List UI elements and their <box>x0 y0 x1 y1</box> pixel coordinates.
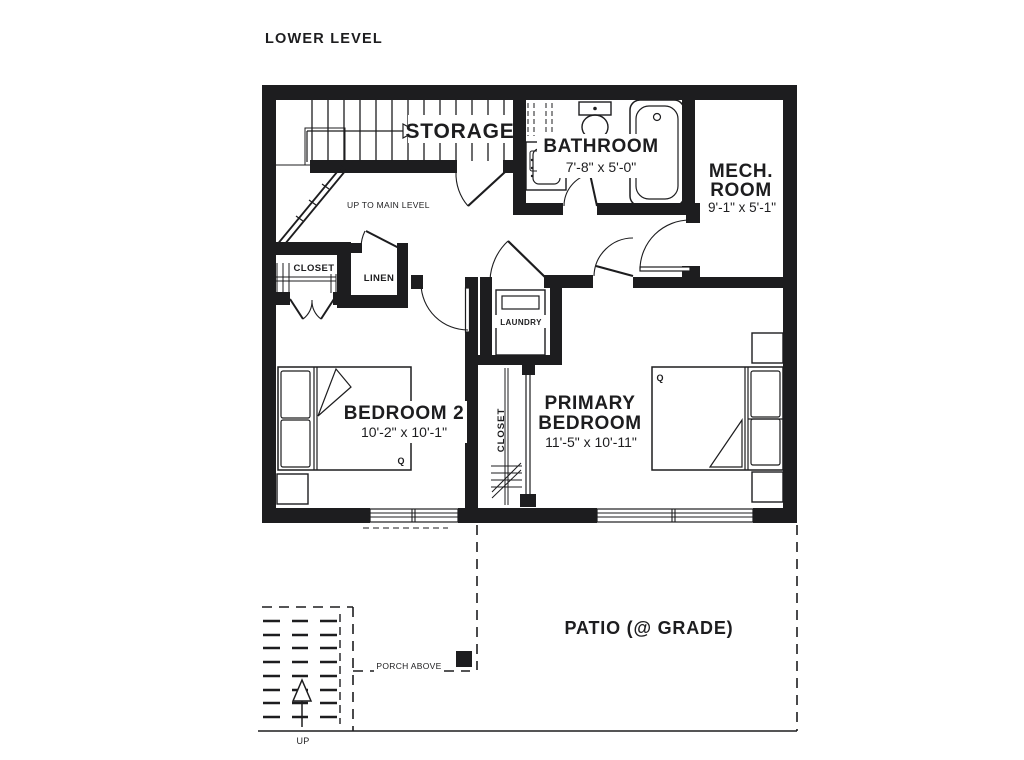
toilet <box>579 102 611 139</box>
nightstand <box>752 333 783 363</box>
window-primary-bedroom <box>597 508 753 523</box>
nightstand <box>277 474 308 504</box>
room-dims-bathroom: 7'-8" x 5'-0" <box>566 159 637 175</box>
primary-bedroom-door <box>594 238 633 276</box>
bathroom-door <box>564 174 597 206</box>
room-dims-mech: 9'-1" x 5'-1" <box>708 200 776 215</box>
bed-tag-bedroom2: Q <box>397 456 404 466</box>
bedroom2-door <box>421 284 470 332</box>
room-label-patio: PATIO (@ GRADE) <box>565 618 734 638</box>
closet-hangers <box>491 463 522 498</box>
porch-post <box>456 651 472 667</box>
blanket-fold <box>710 420 742 467</box>
room-dims-primary: 11'-5" x 10'-11" <box>545 434 637 450</box>
room-label-mech-1: MECH. <box>709 161 773 182</box>
room-label-hall-closet: CLOSET <box>294 263 335 274</box>
bed-primary <box>652 333 783 502</box>
closet-sliding-door <box>526 365 530 500</box>
room-label-bathroom: BATHROOM <box>543 136 658 157</box>
nightstand <box>752 472 783 502</box>
annotation-up-to-main: UP TO MAIN LEVEL <box>347 200 430 210</box>
room-label-bedroom2: BEDROOM 2 <box>344 403 464 424</box>
room-label-storage: STORAGE <box>405 120 514 143</box>
bed-tag-primary: Q <box>656 373 663 383</box>
room-label-primary-1: PRIMARY <box>544 393 635 414</box>
hall-closet-doors <box>290 299 334 319</box>
room-label-linen: LINEN <box>364 273 395 284</box>
room-dims-bedroom2: 10'-2" x 10'-1" <box>361 424 447 440</box>
room-label-mech-2: ROOM <box>710 180 772 201</box>
bathroom-shelving-dashed <box>528 103 552 136</box>
stairs-exterior <box>262 607 353 731</box>
storage-arrow-line <box>307 131 403 162</box>
annotation-porch-above: PORCH ABOVE <box>376 661 441 671</box>
room-label-primary-closet: CLOSET <box>496 408 507 453</box>
stair-break-line <box>276 166 346 250</box>
page-title: LOWER LEVEL <box>265 31 383 47</box>
mech-room-door <box>640 220 690 271</box>
linen-door <box>361 231 399 248</box>
window-bedroom2 <box>370 508 458 523</box>
storage-door <box>456 172 505 206</box>
floor-plan: LOWER LEVEL STORAGE BATHROOM 7'-8" x 5'-… <box>0 0 1024 760</box>
floor-plan-page: LOWER LEVEL STORAGE BATHROOM 7'-8" x 5'-… <box>0 0 1024 760</box>
stair-landing <box>305 128 345 165</box>
room-label-primary-2: BEDROOM <box>538 413 641 434</box>
laundry-door <box>490 241 548 280</box>
annotation-up: UP <box>296 736 309 746</box>
room-label-laundry: LAUNDRY <box>500 318 542 327</box>
